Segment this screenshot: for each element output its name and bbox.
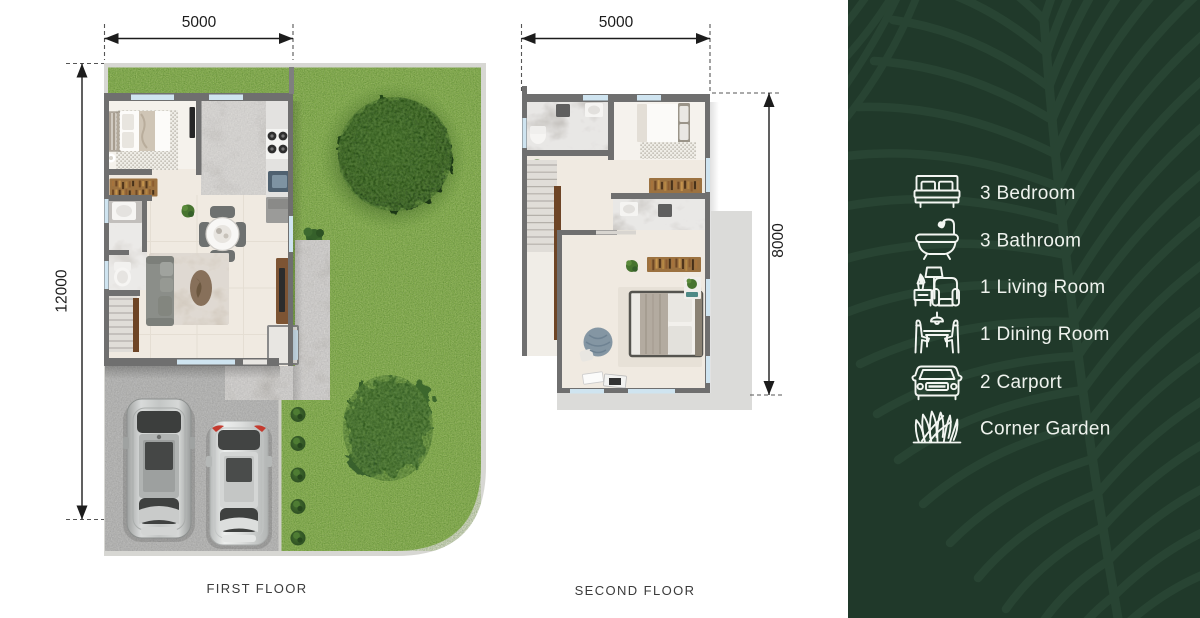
svg-text:FIRST FLOOR: FIRST FLOOR: [206, 581, 307, 596]
svg-text:1 Living Room: 1 Living Room: [980, 277, 1105, 298]
svg-text:12000: 12000: [54, 269, 71, 312]
svg-text:1 Dining Room: 1 Dining Room: [980, 324, 1110, 345]
svg-text:5000: 5000: [599, 14, 634, 31]
svg-text:5000: 5000: [182, 14, 217, 31]
svg-text:8000: 8000: [770, 223, 787, 258]
svg-text:Corner Garden: Corner Garden: [980, 419, 1111, 440]
svg-text:2 Carport: 2 Carport: [980, 372, 1062, 393]
svg-text:SECOND FLOOR: SECOND FLOOR: [575, 583, 696, 598]
svg-text:3 Bedroom: 3 Bedroom: [980, 183, 1076, 204]
svg-text:3 Bathroom: 3 Bathroom: [980, 231, 1081, 252]
